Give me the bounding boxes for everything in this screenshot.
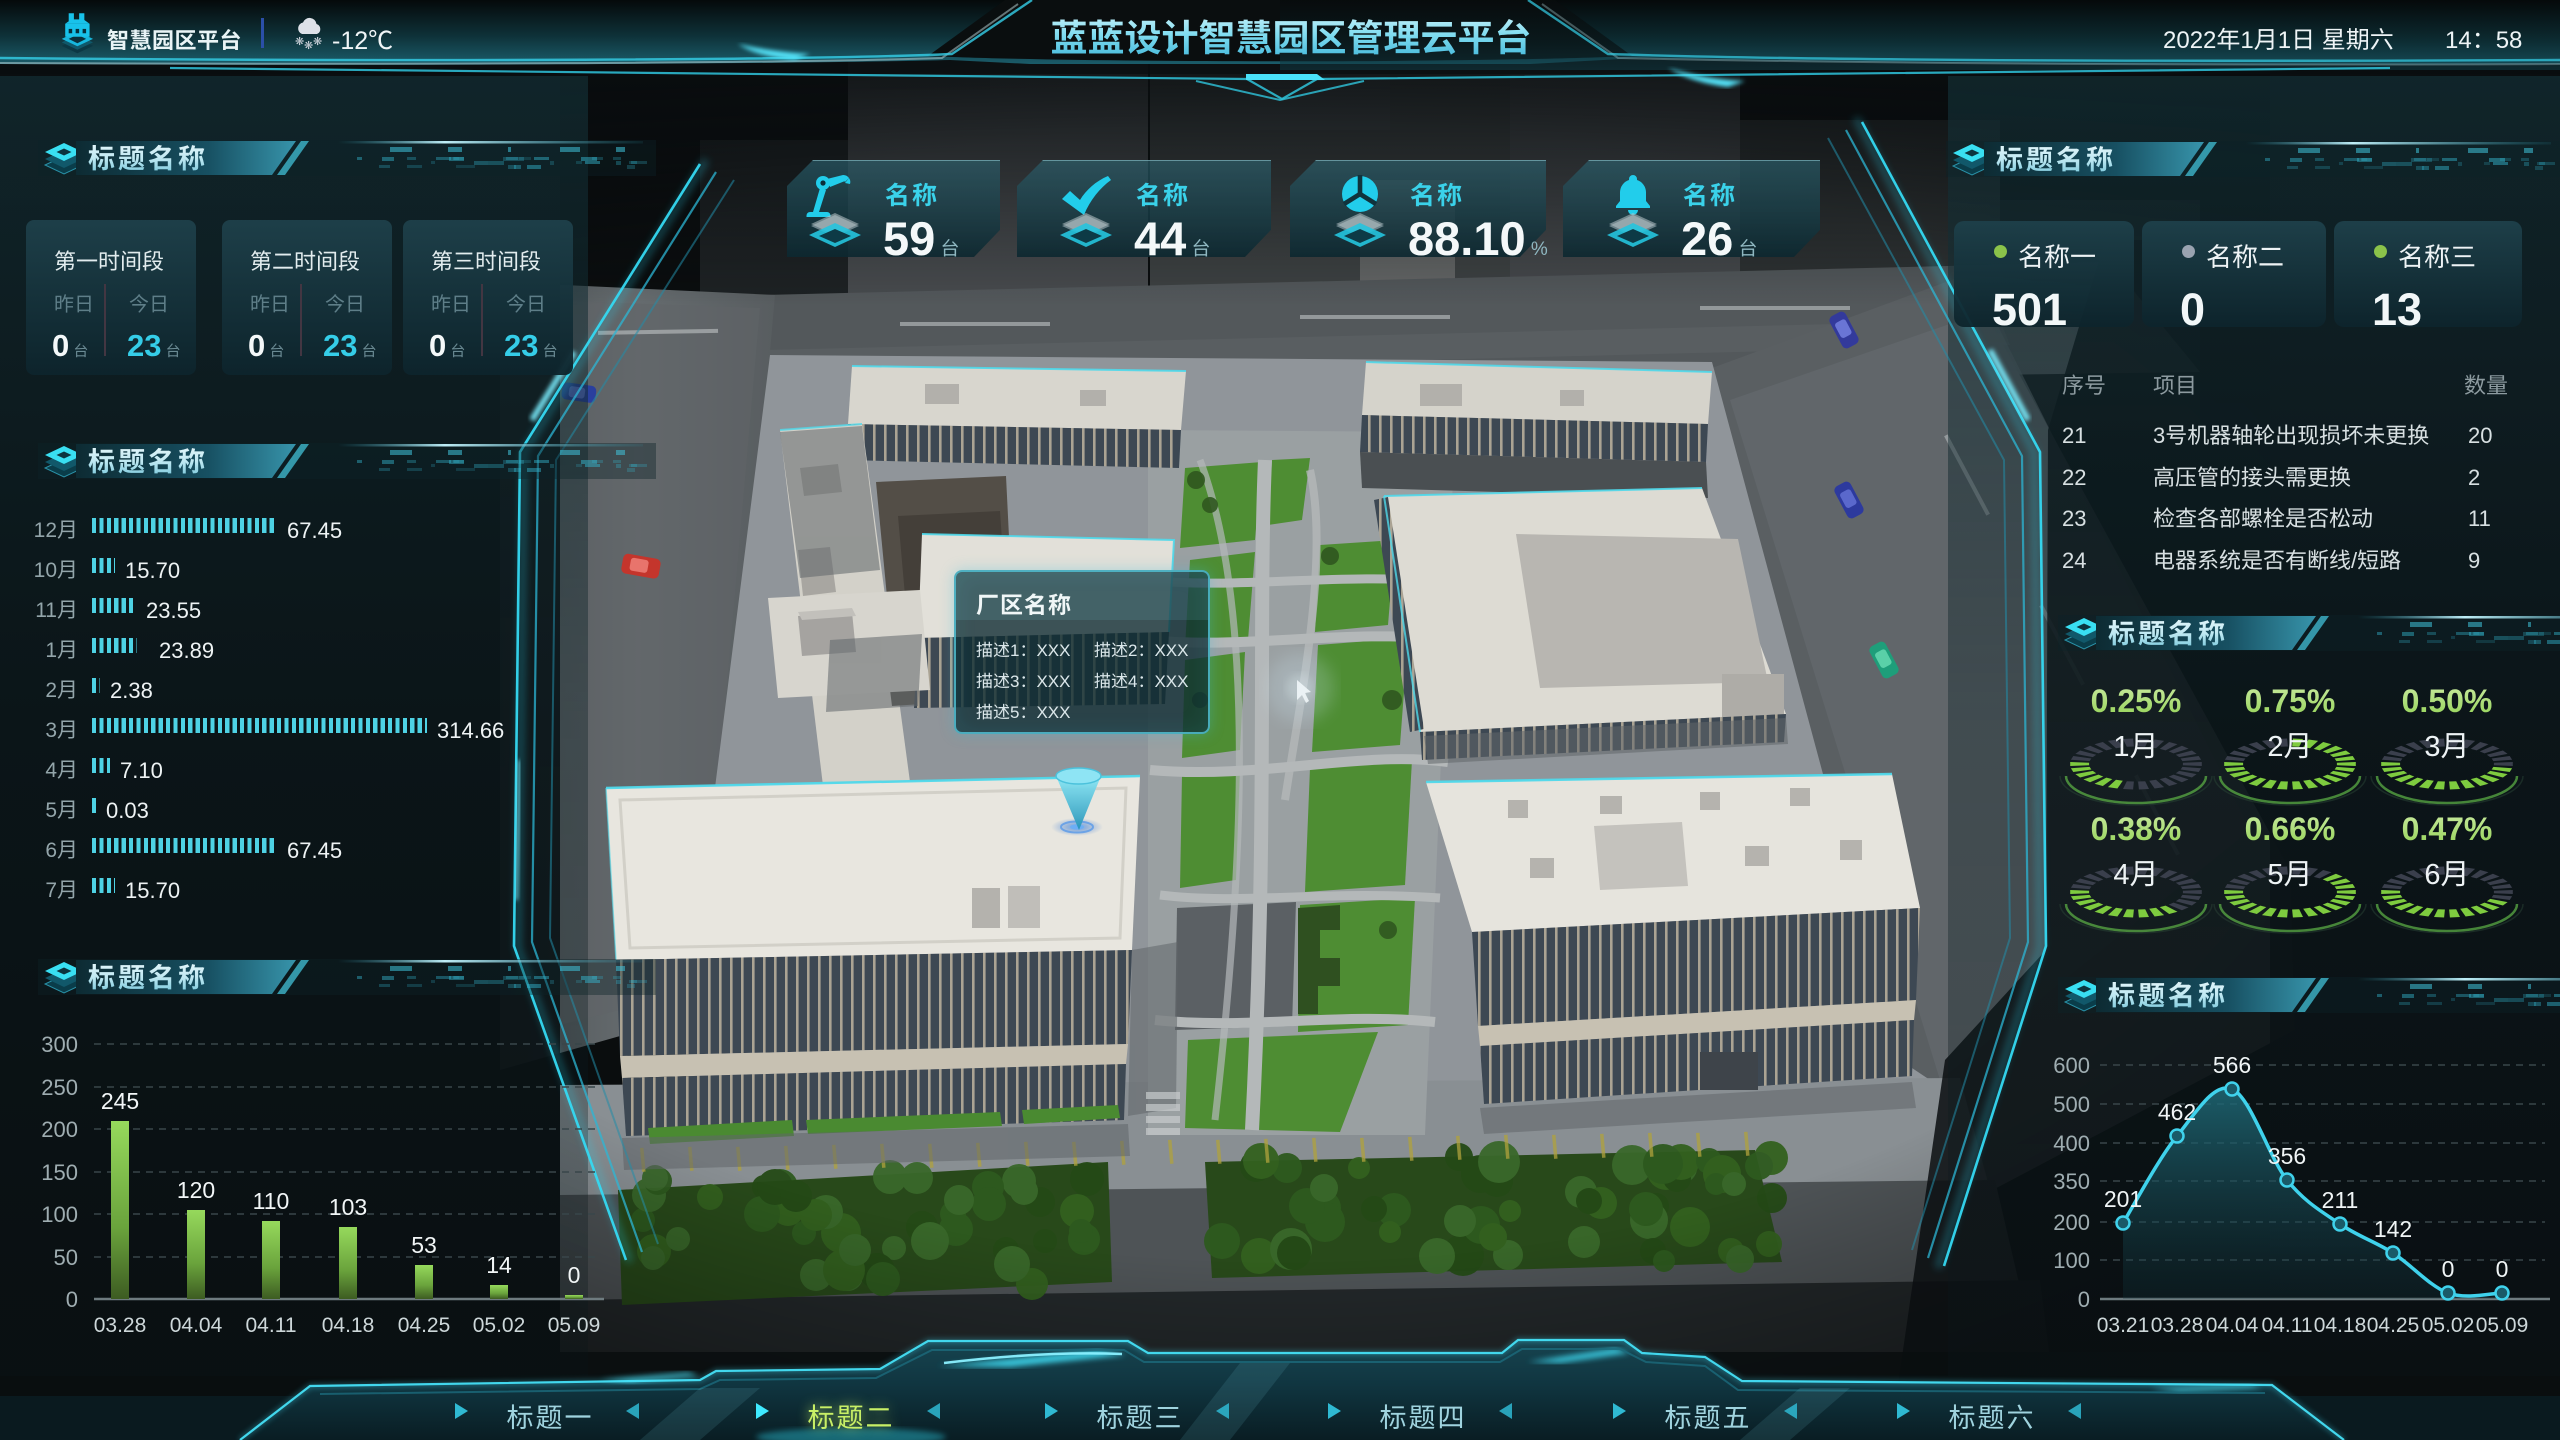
svg-text:0.47%: 0.47%	[2402, 804, 2493, 850]
svg-text:100: 100	[41, 1197, 78, 1229]
svg-text:0.66%: 0.66%	[2245, 804, 2336, 850]
svg-text:100: 100	[2053, 1243, 2090, 1275]
svg-text:14: 14	[486, 1246, 512, 1280]
svg-text:400: 400	[2053, 1126, 2090, 1158]
svg-text:50: 50	[54, 1240, 78, 1272]
svg-text:500: 500	[2053, 1087, 2090, 1119]
svg-text:142: 142	[2374, 1210, 2412, 1244]
svg-text:566: 566	[2213, 1046, 2251, 1080]
svg-text:5月: 5月	[2267, 851, 2312, 893]
svg-text:0.75%: 0.75%	[2245, 676, 2336, 722]
svg-text:356: 356	[2268, 1137, 2306, 1171]
svg-text:3月: 3月	[2424, 723, 2469, 765]
svg-text:❋: ❋	[313, 36, 322, 48]
svg-text:1月: 1月	[2113, 723, 2158, 765]
svg-text:0.50%: 0.50%	[2402, 676, 2493, 722]
svg-text:0.25%: 0.25%	[2091, 676, 2182, 722]
svg-text:蓝蓝设计智慧园区管理云平台: 蓝蓝设计智慧园区管理云平台	[1051, 12, 1532, 62]
svg-text:0: 0	[568, 1256, 581, 1290]
svg-text:53: 53	[411, 1226, 437, 1260]
svg-text:250: 250	[41, 1070, 78, 1102]
svg-text:200: 200	[41, 1112, 78, 1144]
svg-text:❋: ❋	[304, 40, 313, 52]
svg-text:6月: 6月	[2424, 851, 2469, 893]
svg-text:103: 103	[329, 1188, 367, 1222]
svg-text:❋: ❋	[295, 36, 304, 48]
svg-text:245: 245	[101, 1082, 139, 1116]
svg-text:600: 600	[2053, 1048, 2090, 1080]
svg-text:150: 150	[41, 1155, 78, 1187]
svg-text:2月: 2月	[2267, 723, 2312, 765]
svg-text:201: 201	[2104, 1180, 2142, 1214]
svg-text:462: 462	[2158, 1093, 2196, 1127]
svg-text:350: 350	[2053, 1164, 2090, 1196]
svg-text:0: 0	[2496, 1250, 2509, 1284]
svg-text:211: 211	[2322, 1181, 2359, 1215]
svg-text:200: 200	[2053, 1205, 2090, 1237]
svg-text:0: 0	[2078, 1282, 2090, 1314]
svg-text:4月: 4月	[2113, 851, 2158, 893]
svg-text:0: 0	[2442, 1250, 2455, 1284]
svg-text:300: 300	[41, 1027, 78, 1059]
svg-text:0: 0	[66, 1282, 78, 1314]
svg-text:120: 120	[177, 1171, 215, 1205]
svg-text:110: 110	[253, 1182, 290, 1216]
svg-text:0.38%: 0.38%	[2091, 804, 2182, 850]
